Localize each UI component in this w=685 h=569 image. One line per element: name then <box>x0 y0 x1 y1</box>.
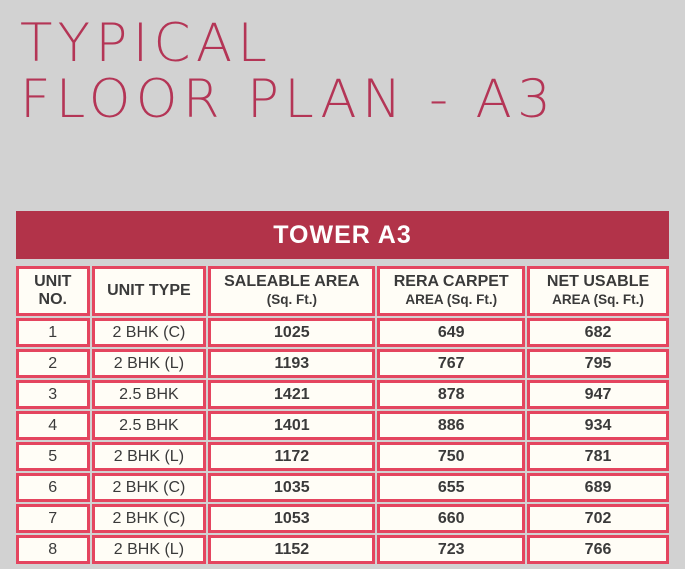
cell-rera-carpet-area: 660 <box>377 504 525 533</box>
table-row: 42.5 BHK1401886934 <box>16 411 669 440</box>
cell-net-usable-area: 795 <box>527 349 669 378</box>
header-unit-no-line1: UNIT <box>34 273 71 290</box>
area-table: UNIT NO. UNIT TYPE SALEABLE AREA (Sq. Ft… <box>14 264 671 566</box>
table-row: 12 BHK (C)1025649682 <box>16 318 669 347</box>
cell-unit-no: 5 <box>16 442 90 471</box>
cell-rera-carpet-area: 649 <box>377 318 525 347</box>
cell-unit-type: 2 BHK (C) <box>92 473 207 502</box>
table-row: 72 BHK (C)1053660702 <box>16 504 669 533</box>
cell-net-usable-area: 781 <box>527 442 669 471</box>
header-rera-line1: RERA CARPET <box>394 273 509 290</box>
header-rera-line2: AREA (Sq. Ft.) <box>380 291 522 309</box>
cell-rera-carpet-area: 655 <box>377 473 525 502</box>
cell-saleable-area: 1193 <box>208 349 375 378</box>
cell-unit-no: 7 <box>16 504 90 533</box>
table-row: 52 BHK (L)1172750781 <box>16 442 669 471</box>
table-row: 32.5 BHK1421878947 <box>16 380 669 409</box>
cell-unit-type: 2 BHK (C) <box>92 504 207 533</box>
cell-rera-carpet-area: 878 <box>377 380 525 409</box>
header-saleable-line2: (Sq. Ft.) <box>211 291 372 309</box>
cell-unit-no: 1 <box>16 318 90 347</box>
cell-rera-carpet-area: 886 <box>377 411 525 440</box>
cell-saleable-area: 1053 <box>208 504 375 533</box>
cell-net-usable-area: 934 <box>527 411 669 440</box>
cell-saleable-area: 1421 <box>208 380 375 409</box>
header-unit-type-line1: UNIT TYPE <box>107 282 191 299</box>
cell-net-usable-area: 682 <box>527 318 669 347</box>
cell-unit-no: 6 <box>16 473 90 502</box>
cell-saleable-area: 1035 <box>208 473 375 502</box>
header-saleable-line1: SALEABLE AREA <box>224 273 359 290</box>
cell-unit-no: 4 <box>16 411 90 440</box>
page-title-line2: FLOOR PLAN - A3 <box>20 72 685 128</box>
header-net-usable-line2: AREA (Sq. Ft.) <box>530 291 666 309</box>
cell-unit-type: 2 BHK (L) <box>92 535 207 564</box>
cell-saleable-area: 1401 <box>208 411 375 440</box>
cell-rera-carpet-area: 750 <box>377 442 525 471</box>
table-body: 12 BHK (C)102564968222 BHK (L)1193767795… <box>16 318 669 564</box>
header-net-usable-line1: NET USABLE <box>547 273 649 290</box>
table-header: UNIT NO. UNIT TYPE SALEABLE AREA (Sq. Ft… <box>16 266 669 316</box>
cell-unit-type: 2.5 BHK <box>92 411 207 440</box>
header-row: UNIT NO. UNIT TYPE SALEABLE AREA (Sq. Ft… <box>16 266 669 316</box>
cell-net-usable-area: 689 <box>527 473 669 502</box>
header-saleable-area: SALEABLE AREA (Sq. Ft.) <box>208 266 375 316</box>
header-rera-carpet-area: RERA CARPET AREA (Sq. Ft.) <box>377 266 525 316</box>
header-unit-no: UNIT NO. <box>16 266 90 316</box>
cell-unit-type: 2.5 BHK <box>92 380 207 409</box>
cell-saleable-area: 1152 <box>208 535 375 564</box>
cell-unit-no: 3 <box>16 380 90 409</box>
cell-net-usable-area: 702 <box>527 504 669 533</box>
cell-saleable-area: 1172 <box>208 442 375 471</box>
cell-net-usable-area: 947 <box>527 380 669 409</box>
cell-unit-type: 2 BHK (C) <box>92 318 207 347</box>
page-title: TYPICAL FLOOR PLAN - A3 <box>0 0 685 128</box>
cell-unit-type: 2 BHK (L) <box>92 442 207 471</box>
table-row: 22 BHK (L)1193767795 <box>16 349 669 378</box>
cell-net-usable-area: 766 <box>527 535 669 564</box>
header-net-usable-area: NET USABLE AREA (Sq. Ft.) <box>527 266 669 316</box>
cell-unit-no: 8 <box>16 535 90 564</box>
table-row: 82 BHK (L)1152723766 <box>16 535 669 564</box>
table-title: TOWER A3 <box>273 221 412 250</box>
cell-saleable-area: 1025 <box>208 318 375 347</box>
brochure-page: TYPICAL FLOOR PLAN - A3 TOWER A3 UNIT NO… <box>0 0 685 569</box>
cell-unit-no: 2 <box>16 349 90 378</box>
cell-rera-carpet-area: 723 <box>377 535 525 564</box>
header-unit-type: UNIT TYPE <box>92 266 207 316</box>
header-unit-no-line2: NO. <box>39 291 67 308</box>
cell-rera-carpet-area: 767 <box>377 349 525 378</box>
table-title-bar: TOWER A3 <box>16 211 669 259</box>
page-title-line1: TYPICAL <box>20 16 685 72</box>
table-row: 62 BHK (C)1035655689 <box>16 473 669 502</box>
cell-unit-type: 2 BHK (L) <box>92 349 207 378</box>
